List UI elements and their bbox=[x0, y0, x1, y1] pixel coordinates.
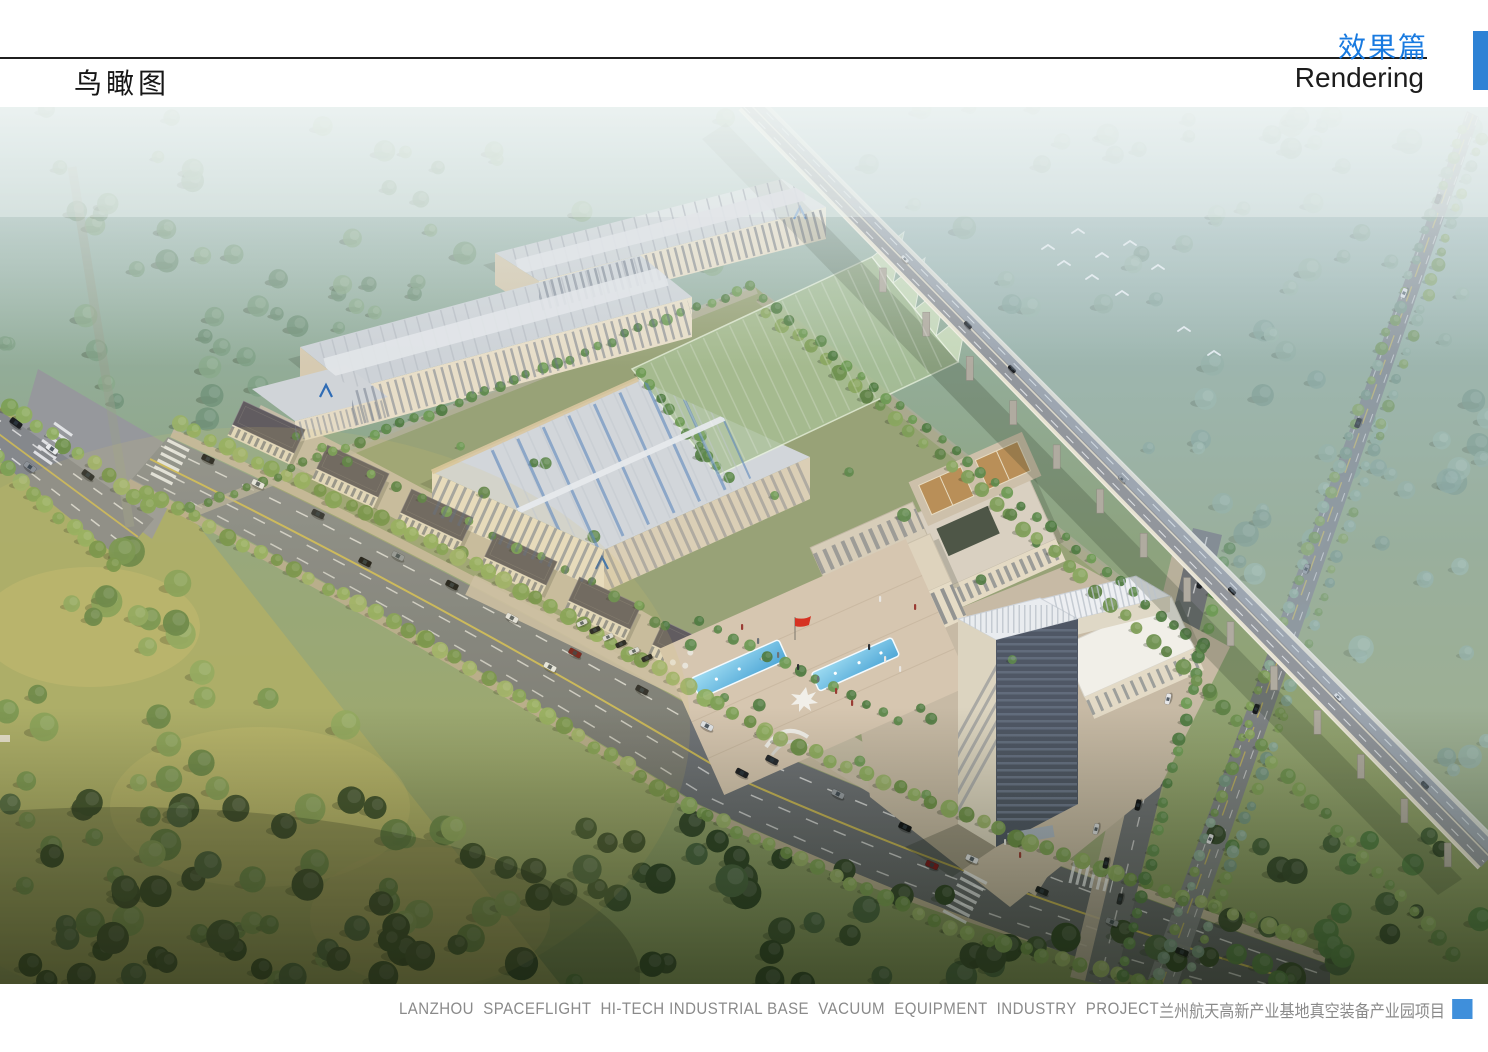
view-title: 鸟瞰图 bbox=[74, 62, 170, 102]
fog-overlay-top bbox=[0, 107, 1488, 217]
caption-blue-square-icon bbox=[1452, 999, 1472, 1019]
header-blue-tab bbox=[1473, 31, 1488, 90]
presentation-page: 鸟瞰图 效果篇 Rendering bbox=[0, 0, 1488, 1052]
section-title-en: Rendering bbox=[1295, 62, 1424, 94]
header-rule bbox=[0, 57, 1427, 59]
project-caption: LANZHOU SPACEFLIGHT HI-TECH INDUSTRIAL B… bbox=[399, 997, 1472, 1021]
section-title-zh: 效果篇 bbox=[1338, 26, 1428, 66]
caption-zh: 兰州航天高新产业基地真空装备产业园项目 bbox=[1159, 997, 1445, 1022]
aerial-rendering-image bbox=[0, 107, 1488, 984]
caption-en: LANZHOU SPACEFLIGHT HI-TECH INDUSTRIAL B… bbox=[399, 999, 1159, 1019]
